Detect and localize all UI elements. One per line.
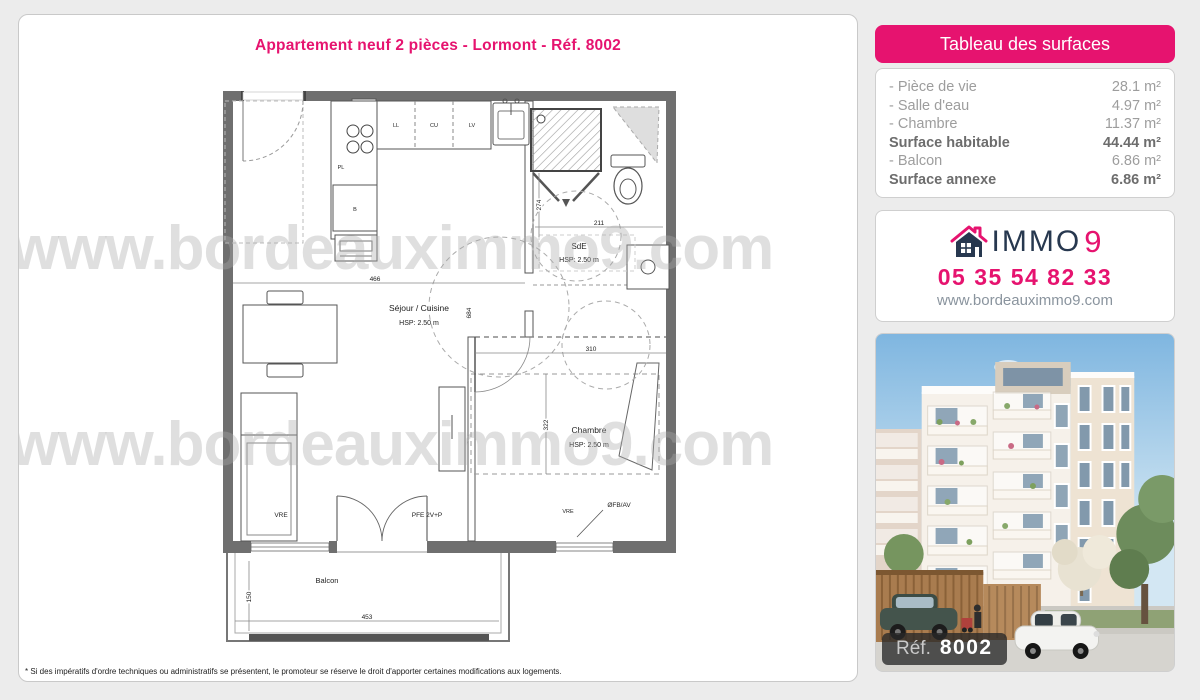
toilet-icon	[611, 155, 645, 204]
dimension-labels: 466 684 211 274 310 322 150 453	[246, 199, 605, 621]
surfaces-table: - Pièce de vie 28.1 m² - Salle d'eau 4.9…	[875, 68, 1175, 198]
dim-balcon-h: 150	[246, 591, 253, 602]
floorplan-panel: Appartement neuf 2 pièces - Lormont - Ré…	[18, 14, 858, 682]
surface-label: Surface annexe	[889, 171, 996, 190]
surface-row-total-habitable: Surface habitable 44.44 m²	[876, 134, 1174, 153]
surface-row: - Balcon 6.86 m²	[876, 152, 1174, 171]
tag-ll: LL	[393, 123, 399, 129]
room-label-sde: SdE	[571, 242, 586, 251]
joinery-tags: VRE PFE 2V+P VRE ØFB/AV	[274, 502, 631, 537]
surface-label: - Balcon	[889, 152, 942, 171]
surface-value: 6.86 m²	[1111, 171, 1161, 190]
immo9-logo: IMMO9	[876, 224, 1174, 260]
photo-card: Réf. 8002	[875, 333, 1175, 672]
tag-pfe: PFE 2V+P	[412, 512, 443, 519]
living-furniture	[241, 291, 465, 541]
surface-label: - Pièce de vie	[889, 78, 977, 97]
surface-row-total-annexe: Surface annexe 6.86 m²	[876, 171, 1174, 190]
dim-chambre-w: 310	[586, 346, 597, 353]
french-door	[337, 496, 427, 552]
building-photo	[876, 334, 1174, 671]
room-hsp-sde: HSP: 2.50 m	[559, 257, 599, 264]
surface-row: - Salle d'eau 4.97 m²	[876, 97, 1174, 116]
ref-badge: Réf. 8002	[882, 633, 1007, 665]
tag-cu: CU	[430, 123, 438, 129]
balcony	[227, 553, 509, 641]
washbasin-icon	[627, 245, 669, 289]
floorplan-drawing: LL CU LV PL B	[19, 15, 857, 681]
tag-ofb: ØFB/AV	[607, 502, 631, 509]
bed	[471, 374, 659, 474]
dim-chambre-h: 322	[543, 419, 550, 430]
dim-living-w: 466	[370, 276, 381, 283]
surface-value: 4.97 m²	[1112, 97, 1161, 116]
room-hsp-chambre: HSP: 2.50 m	[569, 442, 609, 449]
brand-immo: IMMO	[992, 225, 1082, 259]
wardrobe	[619, 363, 659, 470]
room-label-balcon: Balcon	[316, 576, 339, 585]
tag-vre-left: VRE	[274, 512, 288, 519]
surface-label: - Chambre	[889, 115, 958, 134]
surface-value: 44.44 m²	[1103, 134, 1161, 153]
turning-circles	[429, 191, 650, 389]
page: { "page": { "title": "Appartement neuf 2…	[0, 0, 1200, 700]
entry-door	[225, 92, 303, 243]
tag-b: B	[353, 207, 357, 213]
agency-card: IMMO9 05 35 54 82 33 www.bordeauximmo9.c…	[875, 210, 1175, 322]
dim-sde-w: 211	[594, 220, 605, 227]
tag-vre-right: VRE	[562, 509, 574, 515]
house-icon	[949, 224, 989, 260]
surface-value: 6.86 m²	[1112, 152, 1161, 171]
tag-pl: PL	[338, 165, 345, 171]
dim-living-h: 684	[466, 307, 473, 318]
brand-9: 9	[1084, 224, 1101, 260]
ref-number: 8002	[940, 636, 993, 660]
tag-lv: LV	[469, 123, 476, 129]
sink-icon	[493, 99, 529, 145]
surface-value: 28.1 m²	[1112, 78, 1161, 97]
page-title: Appartement neuf 2 pièces - Lormont - Ré…	[19, 37, 857, 55]
room-hsp-sejour: HSP: 2.50 m	[399, 320, 439, 327]
disclaimer-text: * Si des impératifs d'ordre techniques o…	[25, 667, 562, 676]
surfaces-table-header: Tableau des surfaces	[875, 25, 1175, 63]
surface-label: - Salle d'eau	[889, 97, 969, 116]
bedroom	[471, 337, 659, 474]
surface-row: - Pièce de vie 28.1 m²	[876, 78, 1174, 97]
ref-label: Réf.	[896, 638, 931, 660]
surface-row: - Chambre 11.37 m²	[876, 115, 1174, 134]
website-link[interactable]: www.bordeauximmo9.com	[876, 292, 1174, 309]
room-label-chambre: Chambre	[572, 425, 607, 435]
dim-sde-h: 274	[536, 199, 543, 210]
phone-number[interactable]: 05 35 54 82 33	[876, 264, 1174, 291]
room-label-sejour: Séjour / Cuisine	[389, 303, 449, 313]
surface-label: Surface habitable	[889, 134, 1010, 153]
surface-value: 11.37 m²	[1105, 115, 1161, 134]
dim-balcon-w: 453	[362, 614, 373, 621]
